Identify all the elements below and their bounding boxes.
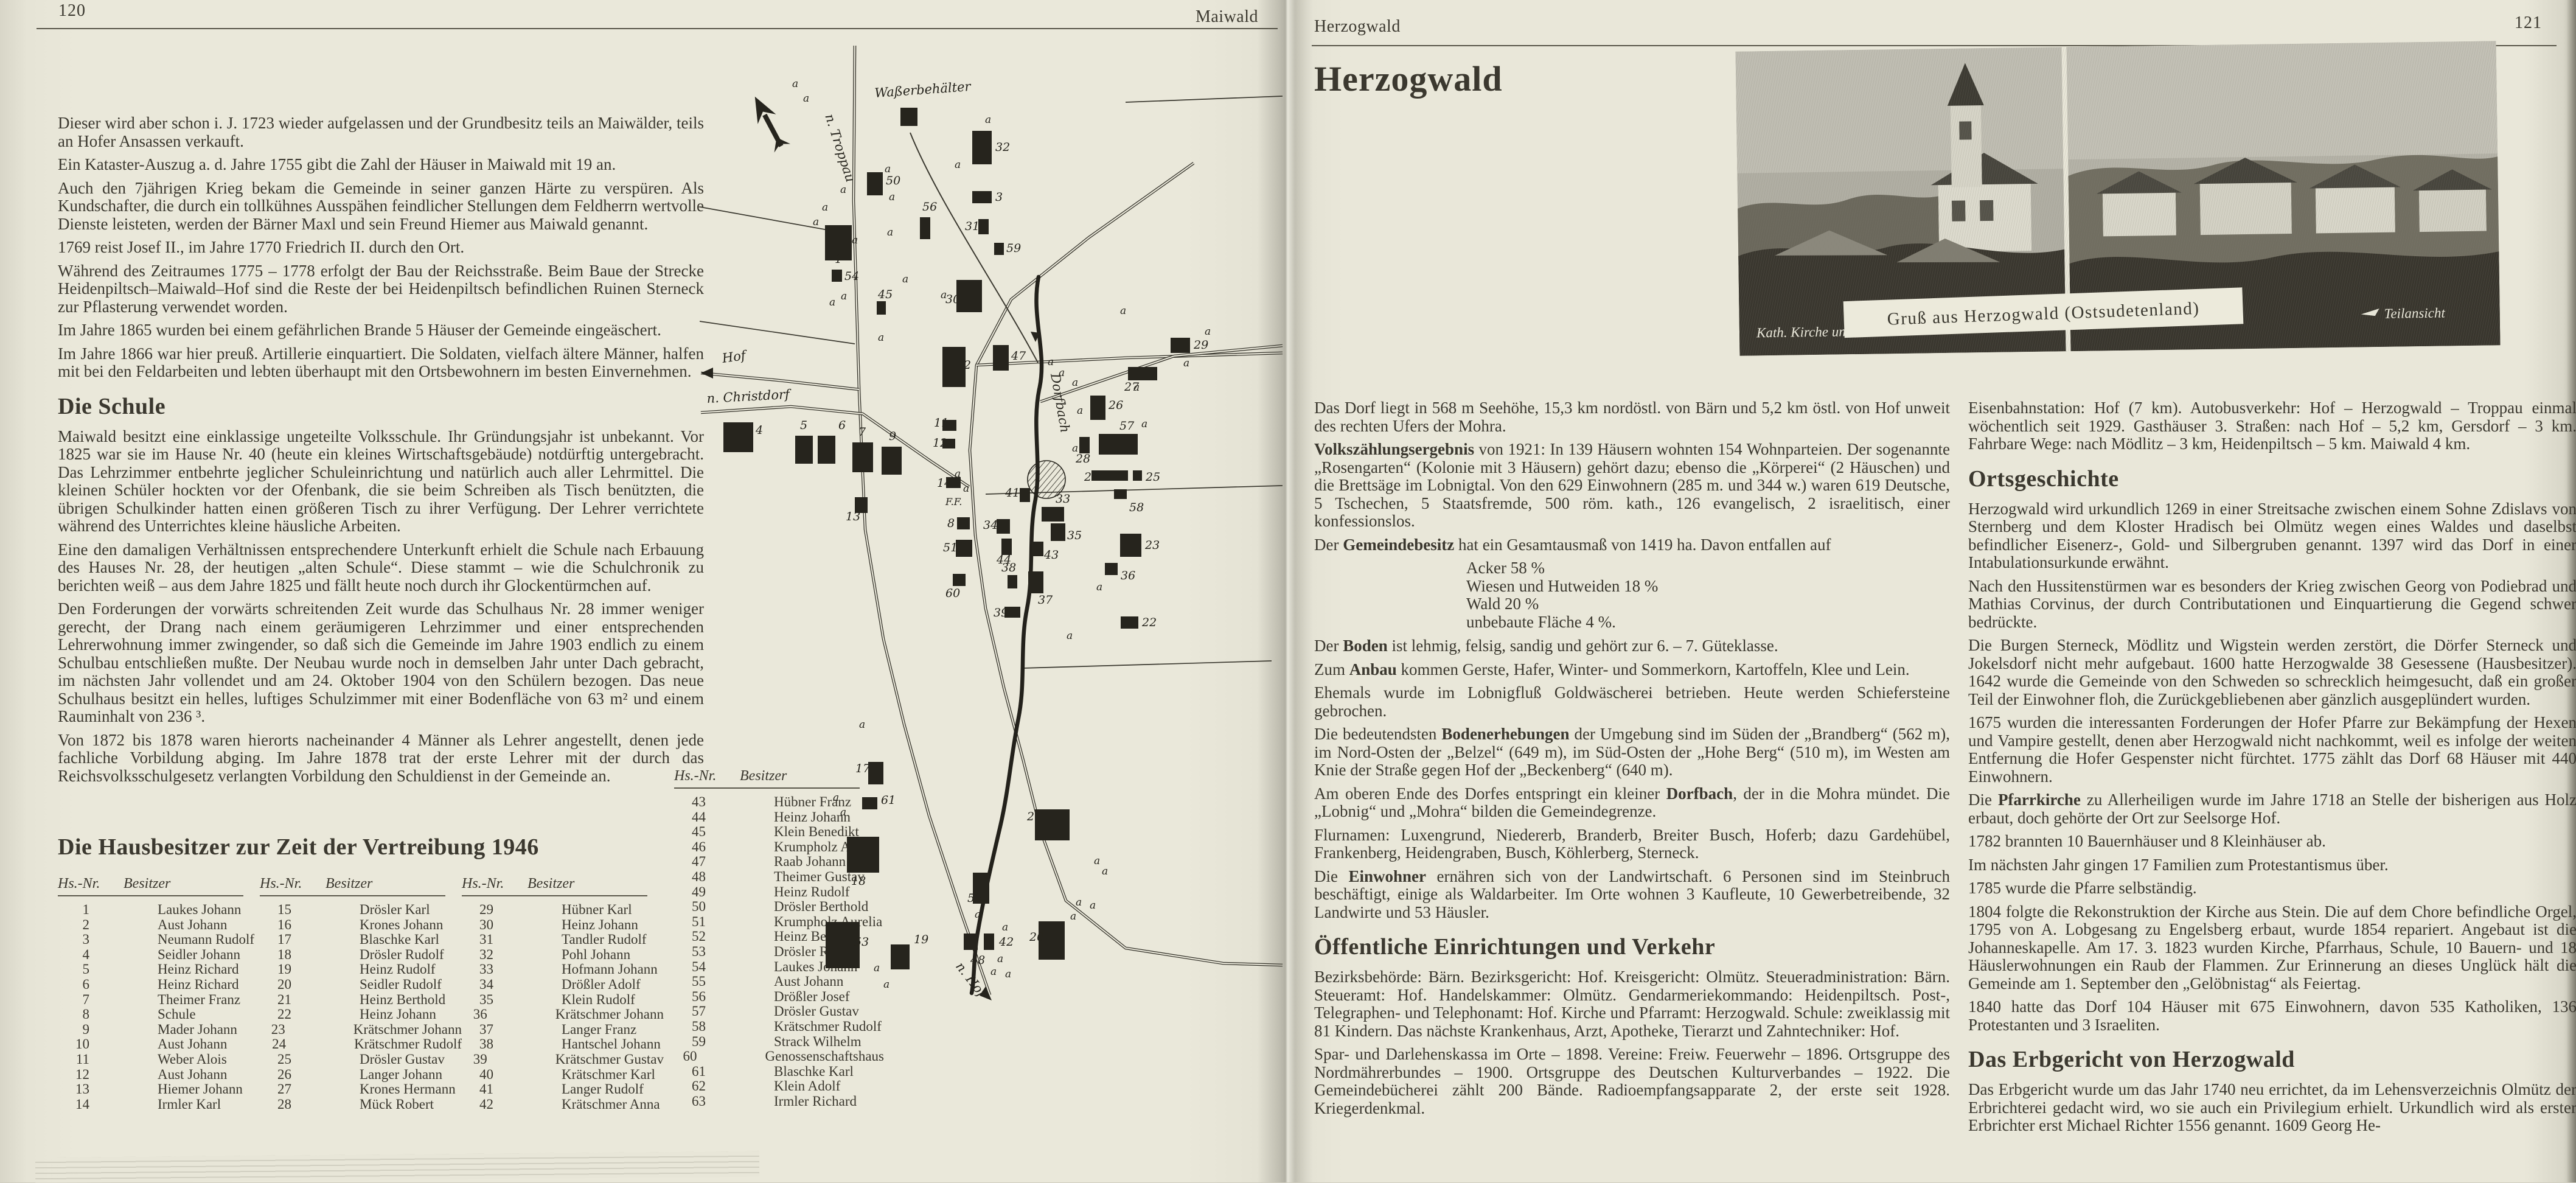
map-house-number: 11 (934, 416, 949, 430)
house-number: 14 (58, 1097, 89, 1112)
col-header-nr: Hs.-Nr. (58, 876, 124, 892)
map-house (920, 217, 930, 239)
table-row: 13Hiemer Johann (58, 1082, 260, 1097)
col-header-nr: Hs.-Nr. (462, 876, 527, 892)
house-number: 57 (674, 1004, 706, 1019)
owner-name: Blaschke Karl (360, 932, 439, 947)
table-row: 40Krätschmer Karl (462, 1067, 664, 1083)
map-house-number: 29 (1193, 338, 1208, 352)
map-house (795, 436, 813, 464)
map-house (867, 172, 883, 195)
paragraph: Zum Anbau kommen Gerste, Hafer, Winter- … (1314, 661, 1950, 679)
outbuilding-mark: a (941, 289, 947, 301)
outbuilding-mark: a (985, 114, 991, 126)
table-row: 18Drösler Rudolf (260, 947, 462, 963)
house-number: 33 (462, 962, 493, 977)
table-row: 30Heinz Johann (462, 918, 664, 933)
table-row: 26Langer Johann (260, 1067, 462, 1083)
outbuilding-mark: a (1076, 896, 1082, 909)
table-row: 7Theimer Franz (58, 993, 260, 1008)
owner-name: Krätschmer Johann (555, 1007, 664, 1022)
table-row: 41Langer Rudolf (462, 1082, 664, 1097)
map-house-number: 50 (886, 174, 900, 187)
outbuilding-mark: a (813, 216, 819, 228)
page-121: Herzogwald 121 Herzogwald (1285, 0, 2576, 1182)
map-house (862, 797, 877, 809)
village-map: 5056323315930154452472927265728242558233… (700, 24, 1284, 1004)
paragraph: 1675 wurden die interessanten Forderunge… (1968, 714, 2576, 786)
outbuilding-mark: a (955, 159, 961, 171)
outbuilding-mark: a (889, 191, 895, 203)
land-use-list: Acker 58 %Wiesen und Hutweiden 18 %Wald … (1466, 559, 1950, 631)
page-edge-shadow (2566, 0, 2576, 1182)
map-house-number: 33 (1056, 492, 1070, 506)
outbuilding-mark: a (840, 184, 846, 196)
table-row: 60Genossenschaftshaus (674, 1049, 884, 1064)
owner-table-header: Hs.-Nr.Besitzer (260, 876, 445, 896)
page-number: 121 (2515, 13, 2542, 33)
outbuilding-mark: a (1094, 855, 1100, 867)
map-house-number: 41 (1004, 486, 1020, 500)
outbuilding-mark: a (874, 962, 880, 974)
map-house-number: 59 (1006, 242, 1021, 255)
outbuilding-mark: a (883, 979, 889, 991)
map-house (1008, 575, 1017, 588)
map-house (1114, 489, 1127, 499)
owner-name: Pohl Johann (562, 947, 630, 963)
table-row: 38Hantschel Johann (462, 1037, 664, 1052)
section-heading: Das Erbgericht von Herzogwald (1968, 1047, 2576, 1072)
map-house (942, 347, 966, 387)
owner-name: Mader Johann (158, 1022, 237, 1038)
table-row: 63Irmler Richard (674, 1094, 884, 1109)
paragraph: Ehemals wurde im Lobnigfluß Goldwäschere… (1314, 684, 1950, 720)
field-line (700, 321, 855, 344)
map-label: F.F. (945, 496, 962, 508)
outbuilding-mark: a (963, 483, 969, 495)
paragraph: 1769 reist Josef II., im Jahre 1770 Frie… (58, 239, 704, 257)
table-row: 22Heinz Johann (260, 1007, 462, 1022)
outbuilding-mark: a (833, 792, 839, 804)
photo-caption-right: Teilansicht (2384, 305, 2446, 321)
table-row: 6Heinz Richard (58, 977, 260, 993)
direction-arrow-icon (701, 368, 713, 379)
map-house (1042, 507, 1064, 522)
outbuilding-mark: a (997, 953, 1003, 965)
outbuilding-mark: a (902, 273, 908, 285)
paragraph: Den Forderungen der vorwärts schreitende… (58, 600, 704, 726)
map-house (852, 442, 873, 472)
owner-name: Langer Franz (562, 1022, 636, 1038)
map-house (1128, 367, 1157, 380)
house-number: 60 (674, 1049, 697, 1064)
house-number: 13 (58, 1082, 89, 1097)
outbuilding-mark: a (1072, 442, 1078, 455)
right-page-column-2: Eisenbahnstation: Hof (7 km). Autobusver… (1968, 399, 2576, 1140)
outbuilding-mark: a (1102, 865, 1108, 878)
map-house-number: 53 (854, 935, 869, 949)
map-house-number: 61 (881, 794, 896, 807)
map-house-number: 22 (1141, 616, 1157, 629)
outbuilding-mark: a (1090, 899, 1096, 912)
col-header-besitzer: Besitzer (325, 876, 372, 892)
map-house-number: 2 (963, 358, 971, 372)
table-row: 36Krätschmer Johann (462, 1007, 664, 1022)
outbuilding-mark: a (1002, 921, 1008, 933)
table-row: 12Aust Johann (58, 1067, 260, 1083)
house-number: 11 (58, 1052, 89, 1067)
outbuilding-mark: a (1077, 405, 1083, 417)
table-row: 21Heinz Berthold (260, 993, 462, 1008)
page-title: Herzogwald (1314, 58, 1503, 99)
hausbesitzer-heading: Die Hausbesitzer zur Zeit der Vertreibun… (58, 835, 706, 860)
map-house-number: 34 (983, 518, 998, 532)
north-arrow-icon (746, 92, 792, 153)
map-house-number: 60 (945, 587, 960, 600)
table-row: 17Blaschke Karl (260, 932, 462, 947)
owner-table-header: Hs.-Nr.Besitzer (462, 876, 647, 896)
owner-name: Weber Alois (158, 1052, 227, 1067)
map-house-number: 9 (889, 430, 896, 443)
field-line (1022, 661, 1272, 668)
house-number: 22 (260, 1007, 291, 1022)
page-number: 120 (58, 1, 86, 21)
owner-name: Heinz Richard (158, 977, 238, 993)
owner-name: Krätschmer Karl (562, 1067, 655, 1083)
road (970, 163, 1283, 965)
outbuilding-mark: a (1072, 377, 1078, 389)
house-number: 10 (58, 1037, 89, 1052)
owner-name: Krätschmer Gustav (555, 1052, 664, 1067)
list-item: Acker 58 % (1466, 559, 1950, 578)
paragraph: Im nächsten Jahr gingen 17 Familien zum … (1968, 856, 2576, 874)
house-number: 8 (58, 1007, 89, 1022)
house-number: 1 (58, 902, 89, 918)
map-house (1090, 396, 1105, 420)
map-house (847, 837, 879, 873)
paragraph: Flurnamen: Luxengrund, Niedererb, Brande… (1314, 826, 1950, 862)
page-120: 120 Maiwald Dieser wird aber schon i. J.… (0, 0, 1285, 1182)
outbuilding-mark: a (1133, 382, 1140, 394)
map-house (953, 574, 966, 586)
map-house-number: 47 (1011, 349, 1026, 363)
owner-name: Hofmann Johann (562, 962, 658, 977)
map-house (891, 944, 910, 969)
table-row: 15Drösler Karl (260, 902, 462, 918)
house-number: 4 (58, 947, 89, 963)
paragraph: Im Jahre 1865 wurden bei einem gefährlic… (58, 321, 704, 340)
map-house (957, 517, 970, 529)
table-row: 34Drößler Adolf (462, 977, 664, 993)
map-house-number: 4 (755, 424, 763, 437)
map-house-number: 14 (937, 476, 952, 490)
outbuilding-mark: a (878, 332, 884, 344)
map-label: Waßerbehälter (874, 79, 973, 100)
map-house (956, 280, 982, 312)
owner-name: Krones Johann (360, 918, 443, 933)
paragraph: Der Gemeindebesitz hat ein Gesamtausmaß … (1314, 536, 1950, 554)
table-row: 2Aust Johann (58, 918, 260, 933)
paragraph: Am oberen Ende des Dorfes entspringt ein… (1314, 785, 1950, 821)
paragraph: 1782 brannten 10 Bauernhäuser und 8 Klei… (1968, 832, 2576, 851)
map-house-number: 7 (858, 425, 866, 439)
map-house-number: 6 (838, 419, 846, 432)
outbuilding-mark: a (1070, 910, 1076, 923)
house-number: 42 (462, 1097, 493, 1112)
table-row: 23Krätschmer Johann (260, 1022, 462, 1038)
map-house (1028, 571, 1043, 593)
table-row: 19Heinz Rudolf (260, 962, 462, 977)
map-house (1105, 563, 1118, 575)
owner-name: Aust Johann (158, 1037, 227, 1052)
table-row: 24Krätschmer Rudolf (260, 1037, 462, 1052)
map-house (994, 243, 1004, 255)
table-row: 20Seidler Rudolf (260, 977, 462, 993)
map-house (1020, 488, 1030, 502)
house-number: 18 (260, 947, 291, 963)
map-house-number: 20 (1029, 930, 1044, 944)
house-number: 36 (462, 1007, 487, 1022)
paragraph: Bezirksbehörde: Bärn. Bezirksgericht: Ho… (1314, 968, 1950, 1040)
map-house-number: 26 (1108, 399, 1123, 412)
house-number: 19 (260, 962, 291, 977)
outbuilding-mark: a (829, 296, 835, 309)
outbuilding-mark: a (792, 78, 798, 90)
map-label: n. Christdorf (706, 387, 792, 406)
outbuilding-mark: a (1120, 305, 1126, 317)
paragraph: Ein Kataster-Auszug a. d. Jahre 1755 gib… (58, 156, 704, 174)
owner-name: Krätschmer Anna (562, 1097, 660, 1112)
map-house (1121, 616, 1138, 629)
col-header-besitzer: Besitzer (527, 876, 574, 892)
house-number: 34 (462, 977, 493, 993)
table-row: 28Mück Robert (260, 1097, 462, 1112)
map-house (868, 762, 883, 784)
paragraph: Von 1872 bis 1878 waren hierorts nachein… (58, 731, 704, 786)
house-number: 32 (462, 947, 493, 963)
map-house-number: 39 (994, 606, 1008, 619)
table-row: 9Mader Johann (58, 1022, 260, 1038)
table-row: 1Laukes Johann (58, 902, 260, 918)
owner-column-2: Hs.-Nr.Besitzer15Drösler Karl16Krones Jo… (260, 876, 462, 1112)
table-row: 10Aust Johann (58, 1037, 260, 1052)
house-number: 63 (674, 1094, 706, 1109)
house-number: 29 (462, 902, 493, 918)
owner-name: Irmler Richard (774, 1094, 857, 1109)
owner-name: Seidler Johann (158, 947, 240, 963)
map-house (832, 270, 842, 282)
map-house-number: 5 (800, 419, 807, 432)
map-house (997, 519, 1010, 534)
paragraph: Das Erbgericht wurde um das Jahr 1740 ne… (1968, 1081, 2576, 1135)
owner-name: Hübner Karl (562, 902, 632, 918)
owner-name: Neumann Rudolf (158, 932, 254, 947)
map-house (956, 540, 972, 557)
table-row: 27Krones Hermann (260, 1082, 462, 1097)
map-house (882, 447, 902, 475)
map-house-number: 13 (846, 510, 860, 523)
map-house-number: 32 (995, 141, 1010, 154)
col-header-besitzer: Besitzer (124, 876, 170, 892)
outbuilding-mark: a (852, 234, 858, 246)
left-text-column: Dieser wird aber schon i. J. 1723 wieder… (58, 114, 704, 790)
table-row: 29Hübner Karl (462, 902, 664, 918)
house-number: 62 (674, 1079, 706, 1094)
house-number: 17 (260, 932, 291, 947)
owner-name: Drösler Rudolf (360, 947, 444, 963)
map-house-number: 25 (1145, 470, 1160, 484)
map-house-number: 58 (1129, 501, 1144, 514)
map-house-number: 36 (1121, 569, 1135, 582)
table-row: 11Weber Alois (58, 1052, 260, 1067)
owner-name: Seidler Rudolf (360, 977, 442, 993)
house-number: 40 (462, 1067, 493, 1083)
house-number: 12 (58, 1067, 89, 1083)
outbuilding-mark: a (1048, 356, 1054, 368)
table-row: 35Klein Rudolf (462, 993, 664, 1008)
section-heading: Ortsgeschichte (1968, 467, 2576, 492)
map-house-number: 54 (844, 270, 859, 283)
house-number: 59 (674, 1035, 706, 1050)
table-row: 37Langer Franz (462, 1022, 664, 1038)
table-row: 14Irmler Karl (58, 1097, 260, 1112)
field-line (1126, 96, 1283, 102)
map-house (1171, 338, 1190, 353)
house-number: 31 (462, 932, 493, 947)
table-row: 62Klein Adolf (674, 1079, 884, 1094)
owner-name: Strack Wilhelm (774, 1035, 862, 1050)
outbuilding-mark: a (1096, 581, 1102, 593)
table-row: 32Pohl Johann (462, 947, 664, 963)
house-number: 23 (260, 1022, 285, 1038)
table-row: 39Krätschmer Gustav (462, 1052, 664, 1067)
owner-name: Krätschmer Rudolf (354, 1037, 462, 1052)
owner-name: Genossenschaftshaus (765, 1049, 884, 1064)
paragraph: Im Jahre 1866 war hier preuß. Artillerie… (58, 345, 704, 381)
map-house (984, 933, 994, 950)
owner-name: Drösler Gustav (774, 1004, 859, 1019)
map-house (900, 108, 917, 126)
house-number: 30 (462, 918, 493, 933)
house-number: 37 (462, 1022, 493, 1038)
table-row: 58Krätschmer Rudolf (674, 1019, 884, 1035)
owner-column-1: Hs.-Nr.Besitzer1Laukes Johann2Aust Johan… (58, 876, 260, 1112)
house-number: 28 (260, 1097, 291, 1112)
house-number: 16 (260, 918, 291, 933)
map-house (978, 219, 989, 234)
outbuilding-mark: a (975, 909, 981, 921)
owner-name: Schule (158, 1007, 196, 1022)
table-row: 4Seidler Johann (58, 947, 260, 963)
owner-name: Heinz Rudolf (360, 962, 436, 977)
house-number: 35 (462, 993, 493, 1008)
outbuilding-mark: a (1141, 418, 1147, 430)
table-row: 57Drösler Gustav (674, 1004, 884, 1019)
outbuilding-mark: a (840, 806, 846, 818)
paragraph: Während des Zeitraumes 1775 – 1778 erfol… (58, 262, 704, 316)
house-number: 24 (260, 1037, 286, 1052)
map-label: Dorfbach (1048, 372, 1073, 434)
paragraph: Eisenbahnstation: Hof (7 km). Autobusver… (1968, 399, 2576, 453)
owner-name: Drösler Karl (360, 902, 430, 918)
map-house-number: 3 (995, 190, 1003, 204)
paragraph: Auch den 7jährigen Krieg bekam die Gemei… (58, 180, 704, 234)
road (970, 163, 1283, 965)
map-house-number: 45 (877, 288, 893, 301)
owner-name: Drößler Adolf (562, 977, 641, 993)
map-house-number: 17 (855, 762, 871, 775)
house-number: 27 (260, 1082, 291, 1097)
running-head: Herzogwald (1314, 17, 1401, 37)
map-house-number: 48 (970, 954, 985, 967)
paragraph: Nach den Hussitenstürmen war es besonder… (1968, 578, 2576, 632)
map-house-number: 52 (967, 892, 982, 905)
table-row: 33Hofmann Johann (462, 962, 664, 977)
map-house (1133, 470, 1142, 481)
house-number: 41 (462, 1082, 493, 1097)
owner-name: Langer Johann (360, 1067, 442, 1083)
owner-name: Aust Johann (158, 918, 227, 933)
right-page-column-1: Das Dorf liegt in 568 m Seehöhe, 15,3 km… (1314, 399, 1950, 1123)
map-house-number: 8 (947, 517, 955, 530)
map-house (1032, 542, 1043, 556)
map-house-number: 42 (998, 935, 1014, 949)
house-number: 38 (462, 1037, 493, 1052)
outbuilding-mark: a (822, 201, 828, 214)
paragraph: Die bedeutendsten Bodenerhebungen der Um… (1314, 725, 1950, 780)
owner-name: Heinz Johann (360, 1007, 436, 1022)
owner-name: Klein Adolf (774, 1079, 840, 1094)
owner-name: Mück Robert (360, 1097, 434, 1112)
list-item: Wald 20 % (1466, 595, 1950, 613)
paragraph: Volkszählungsergebnis von 1921: In 139 H… (1314, 441, 1950, 531)
map-house (993, 345, 1009, 371)
owner-name: Heinz Johann (562, 918, 638, 933)
house-number: 2 (58, 918, 89, 933)
map-house (1120, 534, 1141, 557)
owner-columns: Hs.-Nr.Besitzer1Laukes Johann2Aust Johan… (58, 876, 706, 1112)
paragraph: 1785 wurde die Pfarre selbständig. (1968, 879, 2576, 898)
map-house (972, 191, 992, 203)
paragraph: Das Dorf liegt in 568 m Seehöhe, 15,3 km… (1314, 399, 1950, 435)
paragraph: Spar- und Darlehenskassa im Orte – 1898.… (1314, 1045, 1950, 1117)
map-house (1079, 437, 1090, 453)
map-house (972, 131, 992, 164)
house-number: 20 (260, 977, 291, 993)
owner-table-header: Hs.-Nr.Besitzer (58, 876, 243, 896)
paragraph: 1804 folgte die Rekonstruktion der Kirch… (1968, 903, 2576, 993)
owner-name: Theimer Franz (158, 993, 240, 1008)
table-row: 3Neumann Rudolf (58, 932, 260, 947)
photo-postcard: Kath. Kirche und Schule Gruß aus Herzogw… (1735, 41, 2501, 355)
map-house-number: 12 (933, 436, 947, 450)
map-house-number: 23 (1144, 539, 1160, 552)
house-number: 6 (58, 977, 89, 993)
table-row: 61Blaschke Karl (674, 1064, 884, 1080)
owner-name: Tandler Rudolf (562, 932, 647, 947)
outbuilding-mark: a (885, 163, 891, 175)
map-house (723, 422, 753, 452)
section-heading: Die Schule (58, 394, 704, 419)
outbuilding-mark: a (1183, 357, 1189, 369)
hausbesitzer-section: Die Hausbesitzer zur Zeit der Vertreibun… (58, 835, 706, 1112)
map-house-number: 21 (1026, 810, 1042, 823)
map-house-number: 57 (1119, 419, 1135, 433)
map-house (1051, 523, 1065, 541)
outbuilding-mark: a (803, 92, 809, 105)
owner-name: Krätschmer Rudolf (774, 1019, 882, 1035)
house-number: 9 (58, 1022, 89, 1038)
